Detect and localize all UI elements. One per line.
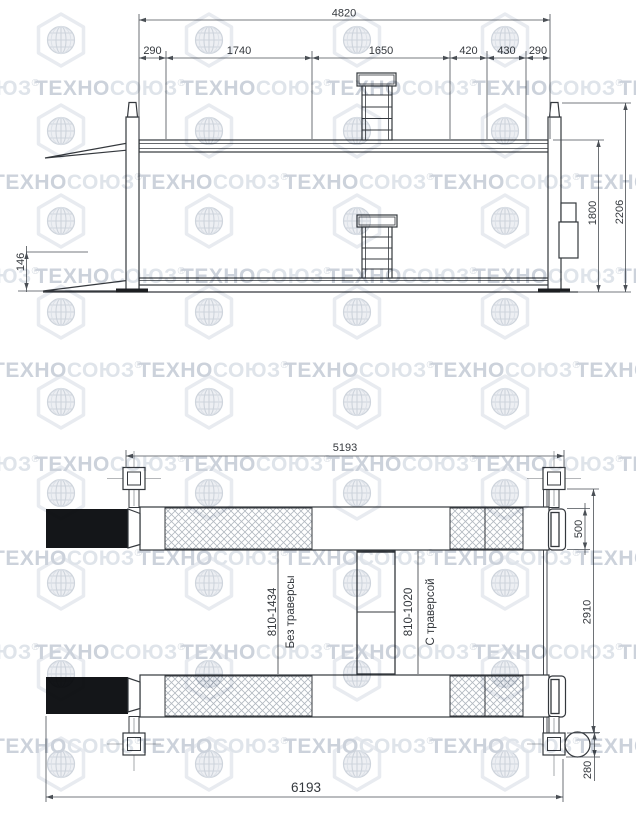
control-unit xyxy=(559,203,578,258)
lower-jack-stand xyxy=(357,215,397,278)
traverse-jack xyxy=(357,551,395,674)
label-without-traverse: Без траверсы xyxy=(285,575,297,648)
dim-2206: 2206 xyxy=(614,200,626,224)
dim-290-left: 290 xyxy=(143,45,161,57)
dim-2910: 2910 xyxy=(582,600,594,624)
hydraulic-unit xyxy=(565,732,590,757)
dim-6193: 6193 xyxy=(291,780,321,795)
dim-5193: 5193 xyxy=(333,442,357,454)
wheel-stop-top xyxy=(549,509,566,550)
post-top-left xyxy=(107,451,161,506)
left-post xyxy=(116,103,148,293)
drive-on-ramp-top xyxy=(46,509,128,548)
label-with-traverse-range: 810-1020 xyxy=(403,588,415,637)
plan-view: 5193 500 2910 280 6193 810-1434 Без трав… xyxy=(24,18,627,802)
ramp-transition-top xyxy=(128,509,140,548)
dim-280: 280 xyxy=(582,761,594,779)
dim-420: 420 xyxy=(459,45,477,57)
label-leader-lines xyxy=(278,551,418,674)
lowered-platform xyxy=(139,278,552,285)
raised-platform xyxy=(139,140,552,152)
side-elevation-view: 4820 290 1740 1650 420 430 290 2206 1800… xyxy=(15,8,631,293)
drive-on-ramp-bottom xyxy=(46,677,128,714)
upper-ramp xyxy=(45,141,139,158)
post-top-right xyxy=(527,451,581,506)
four-post-lift-drawing: 4820 290 1740 1650 420 430 290 2206 1800… xyxy=(0,0,636,813)
dim-290-right: 290 xyxy=(529,45,547,57)
label-without-traverse-range: 810-1434 xyxy=(267,587,279,636)
ramp-transition-bottom xyxy=(128,678,140,712)
dim-1650: 1650 xyxy=(369,45,393,57)
dim-500: 500 xyxy=(573,520,585,538)
wheel-stop-bottom xyxy=(549,676,566,717)
dim-4820: 4820 xyxy=(332,8,356,20)
dim-430: 430 xyxy=(497,45,515,57)
dim-1740: 1740 xyxy=(227,45,251,57)
technical-drawing-canvas: 4820 290 1740 1650 420 430 290 2206 1800… xyxy=(0,0,636,813)
label-with-traverse: С траверсой xyxy=(425,578,437,645)
right-post xyxy=(538,103,570,293)
dim-1800: 1800 xyxy=(587,201,599,225)
dim-146: 146 xyxy=(15,253,27,271)
upper-jack-stand xyxy=(357,73,396,140)
post-bottom-left xyxy=(107,718,161,771)
